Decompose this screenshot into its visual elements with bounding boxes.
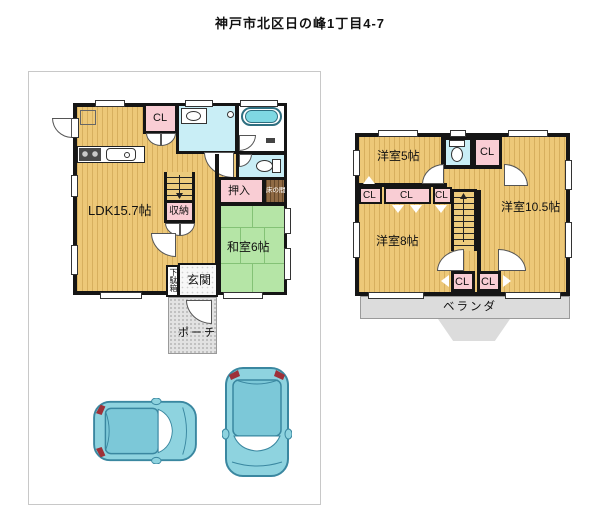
cl-mid-label: CL [400, 191, 413, 201]
cl-bottom1-label: CL [455, 277, 469, 288]
washer-outlet-icon [227, 111, 234, 118]
west105-label: 洋室10.5帖 [501, 201, 560, 213]
page-title: 神戸市北区日の峰1丁目4-7 [0, 17, 600, 30]
genkan-label: 玄関 [187, 274, 211, 286]
window [100, 292, 142, 299]
window [95, 100, 125, 107]
window [565, 222, 572, 258]
window [71, 245, 78, 275]
window [505, 292, 561, 299]
tatami-line [221, 227, 284, 228]
wall [441, 133, 445, 167]
stairs-arrow-1f [179, 175, 180, 194]
shuno-label: 収納 [169, 207, 189, 217]
toilet-bowl-icon-1f [256, 160, 273, 172]
car-top-view-horizontal [88, 398, 202, 464]
stove-icon [79, 148, 101, 161]
window [284, 208, 291, 234]
floorplan-canvas: 神戸市北区日の峰1丁目4-7 CL 押入 [0, 0, 600, 532]
kitchen-sink-icon [106, 148, 136, 161]
window [353, 222, 360, 258]
cl-bottom2-label: CL [481, 277, 495, 288]
getabako-label: 下駄箱 [169, 268, 177, 292]
oshiire-label: 押入 [228, 186, 250, 197]
toilet-tank-icon-1f [272, 159, 281, 173]
toilet-bowl-icon-2f [451, 147, 463, 162]
tatami-line [252, 206, 253, 227]
refrigerator-space [80, 110, 96, 125]
window [378, 130, 418, 137]
back-door-opening [71, 118, 79, 138]
window [368, 292, 424, 299]
sink-drain-icon [124, 152, 130, 158]
stairs-arrow-2f [463, 197, 464, 242]
closet-cl-1f-label: CL [153, 113, 167, 124]
west5-label: 洋室5帖 [377, 150, 420, 162]
toilet-tank-icon-2f [449, 140, 465, 147]
ldk-label: LDK15.7帖 [88, 204, 152, 217]
window [353, 150, 360, 176]
tokonoma-label: 床の間 [266, 188, 286, 195]
wall [441, 165, 502, 169]
car-top-view-vertical [222, 366, 292, 478]
window [508, 130, 548, 137]
vanity-basin-icon [186, 111, 201, 121]
west8-label: 洋室8帖 [376, 235, 419, 247]
veranda-extension [438, 319, 510, 341]
veranda-label: ベランダ [443, 302, 497, 314]
cl-left-label: CL [363, 191, 376, 201]
window [450, 130, 466, 137]
window [240, 100, 278, 107]
bathtub-inner [245, 110, 278, 123]
window [565, 160, 572, 190]
window [223, 292, 263, 299]
window [185, 100, 213, 107]
cl-top-label: CL [480, 147, 494, 158]
cl-right-label: CL [435, 191, 448, 201]
porch-label: ポーチ [178, 328, 217, 339]
wall [477, 190, 481, 271]
window [284, 248, 291, 280]
window [71, 175, 78, 197]
tatami-line [252, 263, 253, 292]
bath-faucet-icon [266, 138, 275, 143]
washitsu-label: 和室6帖 [227, 241, 270, 253]
